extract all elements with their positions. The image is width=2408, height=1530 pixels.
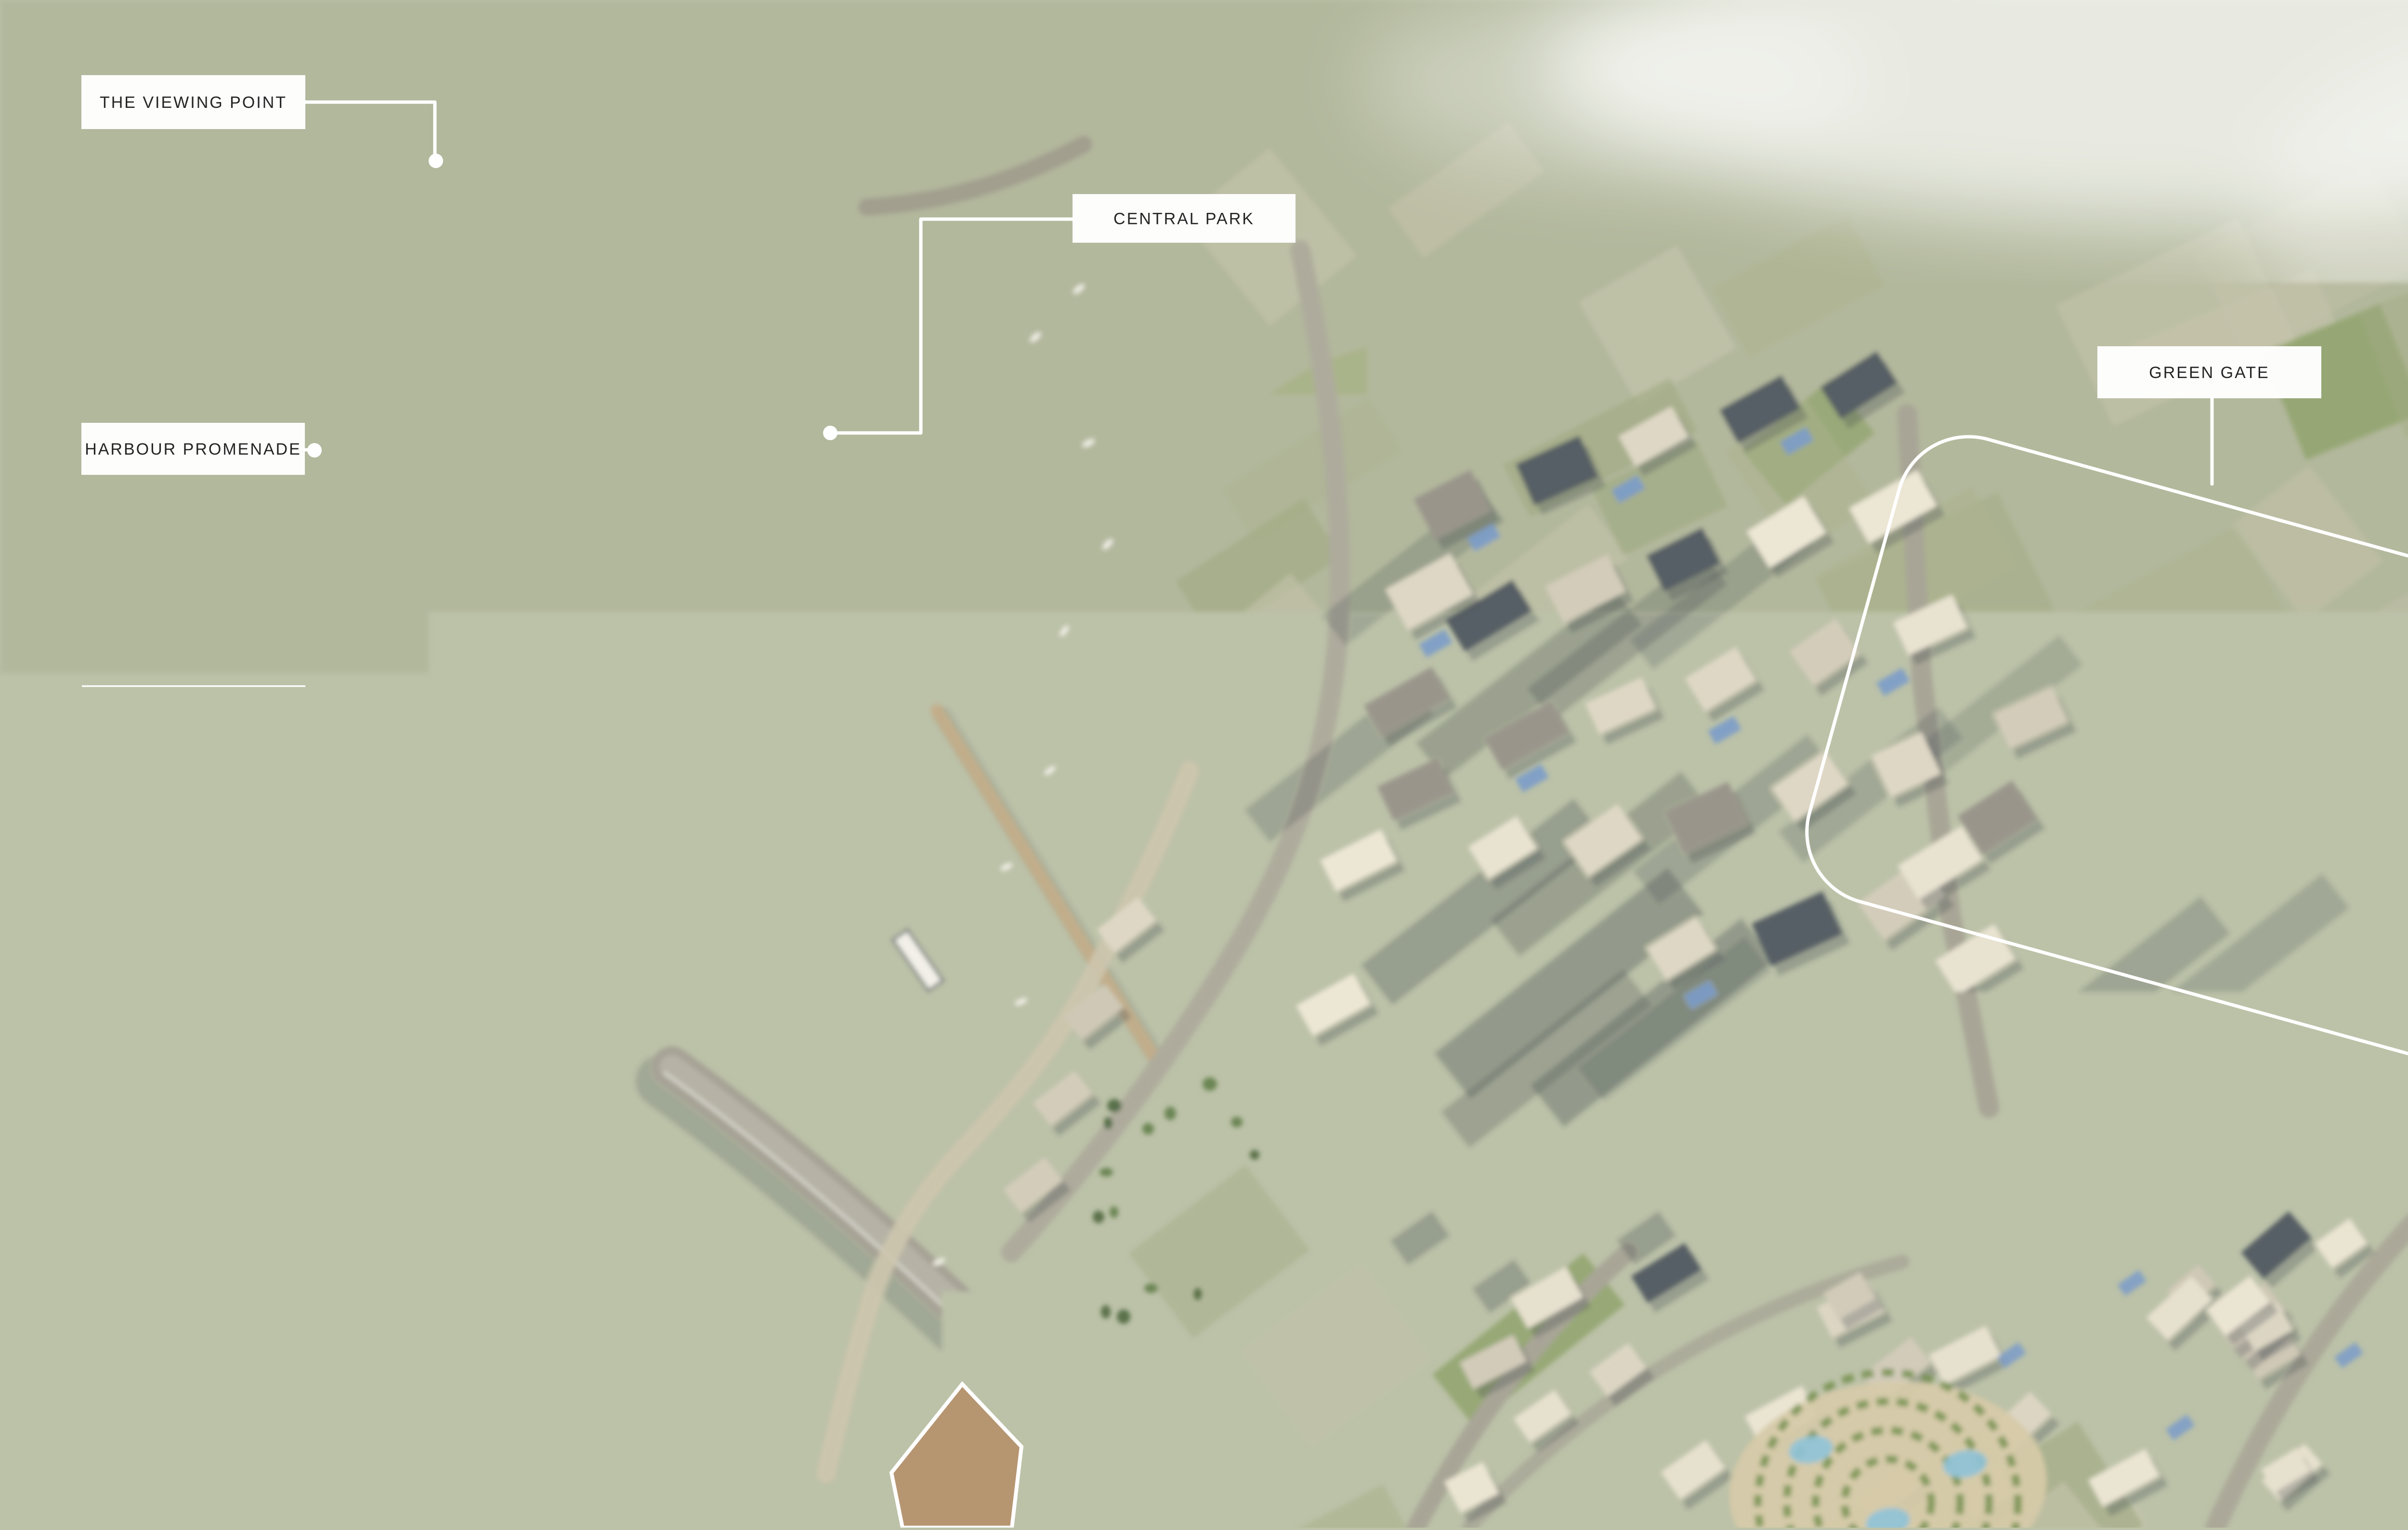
svg-text:CREEK: CREEK	[1055, 1275, 1157, 1308]
svg-text:DOCKLANDS: DOCKLANDS	[137, 1305, 252, 1323]
svg-text:HARBOUR PROMENADE: HARBOUR PROMENADE	[85, 440, 301, 458]
svg-text:Haven: Haven	[1139, 1264, 1307, 1334]
svg-text:CREEK PROMENADE: CREEK PROMENADE	[1226, 741, 1414, 759]
svg-text:THE VIEWING POINT: THE VIEWING POINT	[100, 93, 287, 112]
svg-text:CENTRAL PARK: CENTRAL PARK	[1113, 210, 1255, 228]
svg-text:CREEK BEACH: CREEK BEACH	[724, 1105, 857, 1123]
svg-text:BURJ KHALIFA: BURJ KHALIFA	[47, 1140, 179, 1158]
svg-text:GREEN GATE: GREEN GATE	[2149, 364, 2269, 382]
svg-text:DUBAI CREEK HARBOUR: DUBAI CREEK HARBOUR	[1098, 1350, 1260, 1360]
svg-text:CREEK MARINA: CREEK MARINA	[123, 702, 265, 720]
